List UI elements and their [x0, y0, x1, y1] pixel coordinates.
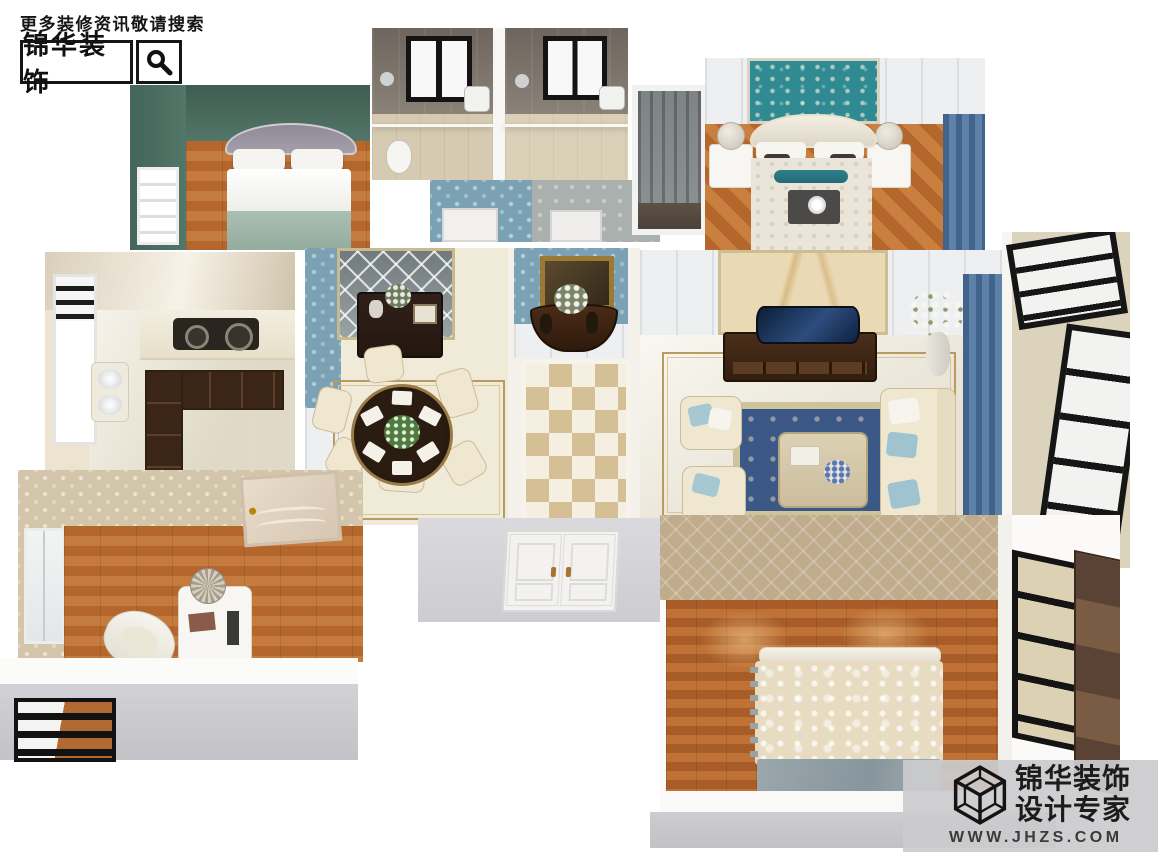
door-molding-arc — [256, 517, 327, 533]
desk-tray — [227, 611, 239, 645]
room-foyer — [508, 248, 640, 525]
bedroom3-back-wall — [660, 515, 1010, 600]
watermark-bottom: 锦华装饰 设计专家 WWW.JHZS.COM — [903, 760, 1158, 852]
watermark-brand-box: 锦华装饰 — [20, 40, 133, 84]
place-setting — [418, 405, 442, 427]
bathroom-window — [406, 36, 472, 102]
glass-partition — [372, 124, 493, 127]
place-setting — [416, 441, 440, 463]
window-mullion — [43, 531, 45, 641]
door-leaf — [560, 534, 616, 606]
room-living — [640, 250, 1005, 522]
bed-bolster-teal — [774, 170, 848, 183]
armchair — [682, 466, 746, 522]
foyer-tile-floor — [522, 360, 630, 525]
door-panel — [514, 583, 553, 601]
dining-table — [351, 384, 453, 486]
master-curtain — [943, 114, 985, 250]
chair-seat — [116, 621, 162, 662]
console-vase — [540, 314, 552, 334]
bathroom-sink — [599, 86, 625, 110]
bed-pillow — [291, 149, 343, 171]
kitchen-cabinet-run — [145, 370, 183, 474]
desk-lamp — [190, 568, 226, 604]
bed — [225, 123, 353, 250]
living-curtain — [963, 274, 1005, 522]
door-handle — [551, 567, 557, 577]
bathroom-door — [442, 208, 498, 242]
table-centerpiece-plant — [384, 415, 420, 449]
watermark-brand-line2: 设计专家 — [1015, 794, 1131, 825]
bed-duvet — [227, 169, 351, 217]
throw-pillow-blue — [886, 431, 918, 458]
entry-double-door — [502, 530, 620, 612]
throw-pillow-blue — [691, 472, 721, 498]
balcony-left-window — [14, 698, 116, 762]
cabinet-drawers — [733, 362, 867, 374]
table-tray — [790, 446, 820, 466]
bedroom3-window — [1012, 550, 1082, 753]
bedroom-window — [137, 167, 179, 245]
window-mullions — [56, 277, 94, 321]
buffet-photo-frames — [413, 304, 437, 324]
flower-arrangement — [908, 290, 964, 336]
place-setting — [360, 405, 384, 427]
tray-plate — [808, 196, 826, 214]
door-panel — [515, 543, 555, 581]
place-setting — [392, 461, 412, 475]
room-master-bedroom — [705, 58, 985, 250]
room-secondary-bedroom — [130, 85, 370, 250]
watermark-website: WWW.JHZS.COM — [949, 829, 1123, 847]
bathroom-door — [550, 210, 602, 242]
tv-screen — [756, 306, 860, 344]
cube-wireframe-logo-icon — [951, 764, 1009, 826]
bathroom-divider-wall — [493, 28, 505, 180]
room-kitchen — [45, 252, 295, 484]
table-lamp — [875, 122, 903, 150]
room-study — [18, 470, 363, 662]
room-bathroom-1 — [372, 28, 493, 180]
toilet — [386, 140, 412, 174]
room-bathrooms — [372, 28, 628, 180]
balcony-window-top — [1006, 232, 1128, 330]
door-leaf — [506, 534, 562, 606]
door-panel — [569, 543, 609, 581]
bed-blanket — [227, 211, 351, 250]
sofa-backrest — [937, 389, 955, 521]
closet-shelf — [638, 203, 701, 229]
bathroom-sink — [464, 86, 490, 112]
stove-burner — [225, 323, 253, 351]
nightstand — [709, 144, 753, 188]
room-bathroom-2 — [505, 28, 628, 180]
hallway-wall-strip — [430, 180, 660, 242]
sink-bowl — [98, 369, 122, 389]
floorplan-render-canvas: 更多装修资讯敬请搜索 锦华装饰 — [0, 0, 1158, 868]
table-flowers-blue — [824, 460, 850, 484]
buffet-decor-vase — [369, 300, 383, 318]
watermark-brand-line1: 锦华装饰 — [1015, 763, 1131, 794]
floor-vase — [926, 332, 950, 376]
magnifier-icon — [145, 48, 173, 76]
nightstand — [867, 144, 911, 188]
place-setting — [392, 390, 413, 405]
watermark-search-box — [136, 40, 182, 84]
stove-burner — [185, 325, 209, 349]
entry-wall — [418, 518, 665, 622]
throw-pillow-white — [707, 407, 732, 431]
console-vase — [586, 312, 598, 334]
dining-chair — [363, 344, 406, 385]
shower-head-icon — [380, 72, 394, 86]
study-door — [240, 471, 343, 548]
throw-pillow-white — [887, 397, 920, 425]
gas-stove — [173, 318, 259, 350]
master-bed — [750, 114, 873, 250]
sofa — [880, 388, 956, 522]
glass-partition — [505, 124, 628, 127]
buffet-flowers — [385, 284, 411, 308]
door-panel — [568, 583, 607, 601]
table-lamp — [717, 122, 745, 150]
kitchen-sink — [91, 362, 129, 422]
bathroom-window — [543, 36, 607, 100]
watermark-brand-text: 锦华装饰 — [23, 25, 130, 99]
armchair — [680, 396, 742, 450]
watermark-top: 更多装修资讯敬请搜索 锦华装饰 — [20, 10, 205, 84]
throw-pillow-blue — [887, 479, 921, 510]
sink-bowl — [98, 395, 122, 415]
desk-book — [188, 612, 216, 633]
bed-pillow — [233, 149, 285, 171]
kitchen-window — [53, 274, 97, 445]
bed-duvet-paisley — [755, 661, 943, 765]
console-flowers — [554, 284, 588, 314]
study-window — [24, 528, 66, 644]
place-setting — [362, 441, 386, 463]
door-handle — [566, 567, 572, 577]
bed-tassels — [750, 667, 758, 763]
coffee-table — [778, 432, 868, 508]
outer-wall-white-band — [0, 658, 358, 684]
shower-head-icon — [515, 74, 529, 88]
room-walkin-closet — [632, 85, 707, 235]
